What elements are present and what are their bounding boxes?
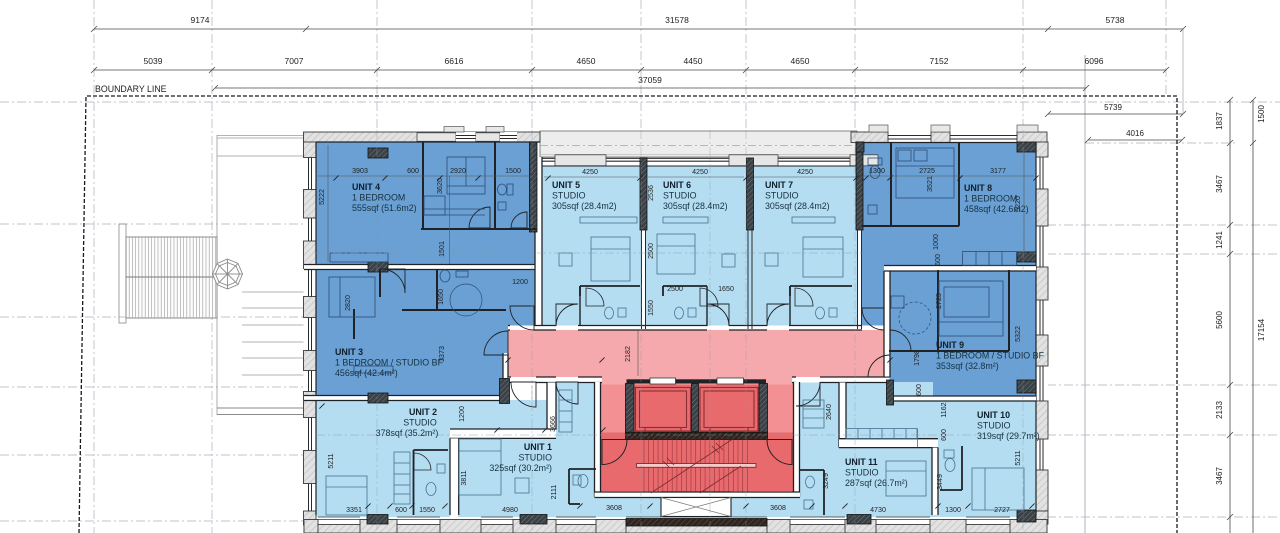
svg-text:4016: 4016 [1126, 129, 1144, 138]
svg-text:5739: 5739 [1104, 103, 1122, 112]
svg-text:1241: 1241 [1215, 231, 1224, 249]
svg-text:UNIT 9: UNIT 9 [936, 340, 964, 350]
svg-text:305sqf (28.4m2): 305sqf (28.4m2) [552, 201, 617, 211]
svg-text:2725: 2725 [935, 293, 943, 309]
svg-text:3608: 3608 [770, 504, 786, 512]
svg-text:3521: 3521 [926, 176, 934, 192]
svg-text:555sqf (51.6m2): 555sqf (51.6m2) [352, 203, 417, 213]
svg-text:1200: 1200 [458, 406, 466, 422]
svg-text:600: 600 [407, 167, 419, 175]
svg-text:1798: 1798 [913, 350, 921, 366]
svg-text:1501: 1501 [438, 241, 446, 257]
svg-text:1500: 1500 [1257, 105, 1266, 123]
svg-text:3811: 3811 [460, 470, 468, 485]
svg-text:2727: 2727 [994, 506, 1010, 514]
svg-text:4250: 4250 [797, 168, 813, 176]
svg-text:5222: 5222 [318, 189, 326, 205]
svg-text:4250: 4250 [582, 168, 598, 176]
svg-text:UNIT 11: UNIT 11 [845, 457, 878, 467]
svg-text:1550: 1550 [647, 300, 655, 316]
svg-text:5039: 5039 [144, 56, 163, 66]
svg-text:2500: 2500 [667, 285, 683, 293]
svg-text:2640: 2640 [825, 404, 833, 420]
svg-text:2133: 2133 [1215, 401, 1224, 419]
svg-text:1300: 1300 [945, 506, 961, 514]
svg-text:STUDIO: STUDIO [845, 468, 879, 478]
svg-text:3467: 3467 [1215, 175, 1224, 193]
svg-text:UNIT 2: UNIT 2 [409, 407, 437, 417]
svg-text:7007: 7007 [285, 56, 304, 66]
svg-text:5211: 5211 [327, 453, 335, 468]
svg-text:1650: 1650 [437, 289, 445, 305]
svg-text:4250: 4250 [692, 168, 708, 176]
svg-text:3449: 3449 [936, 474, 944, 490]
svg-text:5600: 5600 [1215, 311, 1224, 329]
svg-text:4450: 4450 [684, 56, 703, 66]
svg-text:4650: 4650 [791, 56, 810, 66]
svg-text:UNIT 7: UNIT 7 [765, 180, 793, 190]
svg-text:319sqf (29.7m²): 319sqf (29.7m²) [977, 431, 1040, 441]
svg-text:1200: 1200 [512, 278, 528, 286]
svg-text:3351: 3351 [346, 506, 362, 514]
svg-text:UNIT 8: UNIT 8 [964, 183, 992, 193]
svg-text:4730: 4730 [870, 506, 886, 514]
svg-text:2536: 2536 [647, 185, 655, 201]
svg-text:325sqf (30.2m²): 325sqf (30.2m²) [489, 463, 552, 473]
svg-text:1 BEDROOM: 1 BEDROOM [964, 194, 1017, 204]
svg-text:6616: 6616 [445, 56, 464, 66]
svg-text:2500: 2500 [647, 243, 655, 259]
svg-text:31578: 31578 [665, 15, 689, 25]
svg-text:9174: 9174 [191, 15, 210, 25]
svg-text:3249: 3249 [822, 473, 830, 489]
svg-text:1837: 1837 [1215, 112, 1224, 130]
svg-text:UNIT 1: UNIT 1 [524, 442, 552, 452]
svg-text:2820: 2820 [344, 295, 352, 311]
svg-text:3903: 3903 [352, 167, 368, 175]
svg-text:STUDIO: STUDIO [552, 191, 586, 201]
svg-text:1 BEDROOM: 1 BEDROOM [352, 193, 405, 203]
svg-text:3373: 3373 [438, 346, 446, 362]
svg-text:456sqf (42.4m²): 456sqf (42.4m²) [335, 368, 398, 378]
svg-text:378sqf (35.2m²): 378sqf (35.2m²) [376, 428, 439, 438]
svg-text:3177: 3177 [990, 167, 1006, 175]
svg-text:600: 600 [940, 429, 948, 441]
svg-text:2725: 2725 [919, 167, 935, 175]
svg-text:1 BEDROOM / STUDIO BF: 1 BEDROOM / STUDIO BF [936, 351, 1045, 361]
svg-text:3620: 3620 [436, 178, 444, 194]
svg-text:STUDIO: STUDIO [765, 191, 799, 201]
svg-text:600: 600 [395, 506, 407, 514]
svg-text:17154: 17154 [1257, 318, 1266, 341]
svg-text:STUDIO: STUDIO [403, 418, 437, 428]
svg-text:37059: 37059 [638, 75, 662, 85]
svg-text:7152: 7152 [930, 56, 949, 66]
svg-text:UNIT 5: UNIT 5 [552, 180, 580, 190]
svg-text:6096: 6096 [1085, 56, 1104, 66]
svg-text:4650: 4650 [577, 56, 596, 66]
svg-text:5738: 5738 [1106, 15, 1125, 25]
svg-text:UNIT 3: UNIT 3 [335, 347, 363, 357]
svg-text:5220: 5220 [1014, 196, 1022, 212]
svg-text:353sqf (32.8m²): 353sqf (32.8m²) [936, 361, 999, 371]
svg-text:UNIT 10: UNIT 10 [977, 410, 1010, 420]
svg-text:UNIT 4: UNIT 4 [352, 182, 380, 192]
svg-text:1550: 1550 [419, 506, 435, 514]
svg-text:1650: 1650 [718, 285, 734, 293]
svg-text:600: 600 [915, 384, 923, 396]
svg-text:305sqf (28.4m2): 305sqf (28.4m2) [663, 201, 728, 211]
svg-text:UNIT 6: UNIT 6 [663, 180, 691, 190]
svg-text:600: 600 [934, 254, 942, 266]
svg-text:STUDIO: STUDIO [663, 191, 697, 201]
svg-text:1300: 1300 [869, 167, 885, 175]
svg-text:1500: 1500 [505, 167, 521, 175]
svg-text:STUDIO: STUDIO [518, 453, 552, 463]
svg-text:5322: 5322 [1014, 326, 1022, 342]
svg-text:3467: 3467 [1215, 467, 1224, 485]
svg-text:1000: 1000 [932, 234, 940, 250]
svg-text:3666: 3666 [549, 416, 557, 432]
svg-text:4980: 4980 [502, 506, 518, 514]
svg-text:2182: 2182 [624, 346, 632, 362]
svg-text:287sqf (26.7m²): 287sqf (26.7m²) [845, 478, 908, 488]
svg-text:STUDIO: STUDIO [977, 421, 1011, 431]
svg-text:305sqf (28.4m2): 305sqf (28.4m2) [765, 201, 830, 211]
svg-text:5211: 5211 [1014, 450, 1022, 465]
svg-text:1162: 1162 [940, 402, 948, 417]
svg-text:3608: 3608 [606, 504, 622, 512]
svg-text:2111: 2111 [550, 485, 558, 500]
svg-text:2920: 2920 [450, 167, 466, 175]
svg-text:BOUNDARY LINE: BOUNDARY LINE [95, 84, 167, 94]
svg-text:1 BEDROOM / STUDIO BF: 1 BEDROOM / STUDIO BF [335, 358, 444, 368]
